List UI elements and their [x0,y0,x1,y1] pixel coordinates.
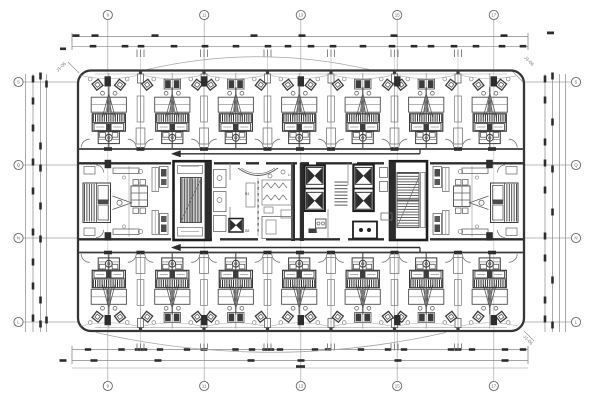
svg-text:N: N [17,236,20,241]
svg-text:Q: Q [574,163,578,168]
svg-text:13: 13 [298,13,303,18]
svg-text:15: 15 [395,384,400,389]
svg-text:17: 17 [491,13,496,18]
svg-text:13: 13 [298,384,303,389]
svg-text:B8: B8 [245,229,249,233]
svg-text:S: S [575,80,578,85]
svg-text:15: 15 [395,13,400,18]
svg-text:11: 11 [202,384,207,389]
svg-text:S: S [17,80,20,85]
svg-text:11: 11 [202,13,207,18]
svg-text:B1: B1 [245,192,249,196]
svg-text:B6: B6 [313,230,317,234]
svg-text:17: 17 [491,384,496,389]
svg-text:L1: L1 [288,173,292,177]
svg-text:N: N [574,236,577,241]
svg-text:Q: Q [17,163,21,168]
